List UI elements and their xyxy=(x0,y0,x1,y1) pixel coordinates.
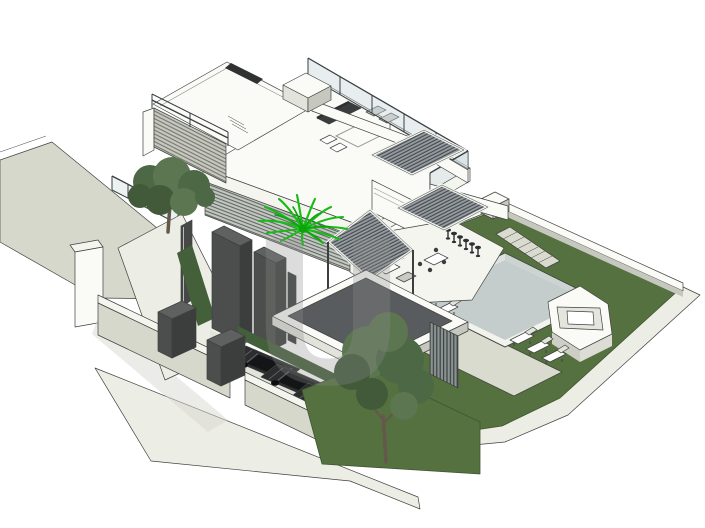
spa-basin xyxy=(567,311,594,325)
planter-1 xyxy=(158,301,196,358)
architectural-render: U xyxy=(0,0,705,528)
planter-2 xyxy=(207,329,245,386)
render-canvas: U xyxy=(0,0,705,528)
watermark-letter: U xyxy=(248,199,409,430)
